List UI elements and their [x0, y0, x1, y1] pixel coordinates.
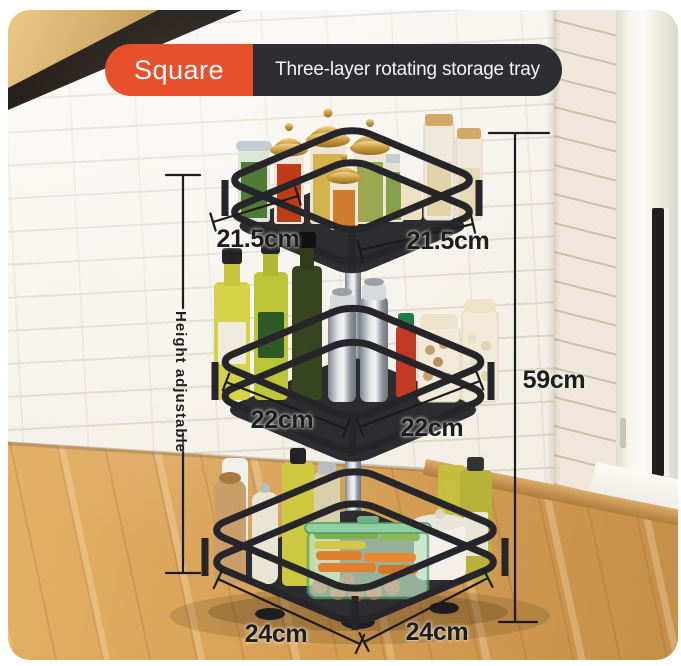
- dimension-lines: [8, 10, 678, 660]
- product-photo: 21.5cm 21.5cm 22cm 22cm 24cm 24cm 59cm H…: [8, 10, 678, 660]
- dimension-label-tier1-right: 21.5cm: [407, 227, 490, 256]
- dimension-label-tier2-left: 22cm: [251, 406, 314, 435]
- dimension-label-total-height: 59cm: [523, 366, 586, 395]
- dimension-label-tier3-left: 24cm: [245, 620, 308, 649]
- dimension-label-tier3-right: 24cm: [406, 618, 469, 647]
- shape-badge: Square: [105, 44, 253, 96]
- height-adjustable-note: Height adjustable: [172, 311, 189, 453]
- dimension-label-tier1-left: 21.5cm: [217, 225, 300, 254]
- product-badge: Square Three-layer rotating storage tray: [105, 44, 562, 96]
- product-title-badge: Three-layer rotating storage tray: [253, 44, 562, 96]
- dimension-label-tier2-right: 22cm: [401, 414, 464, 443]
